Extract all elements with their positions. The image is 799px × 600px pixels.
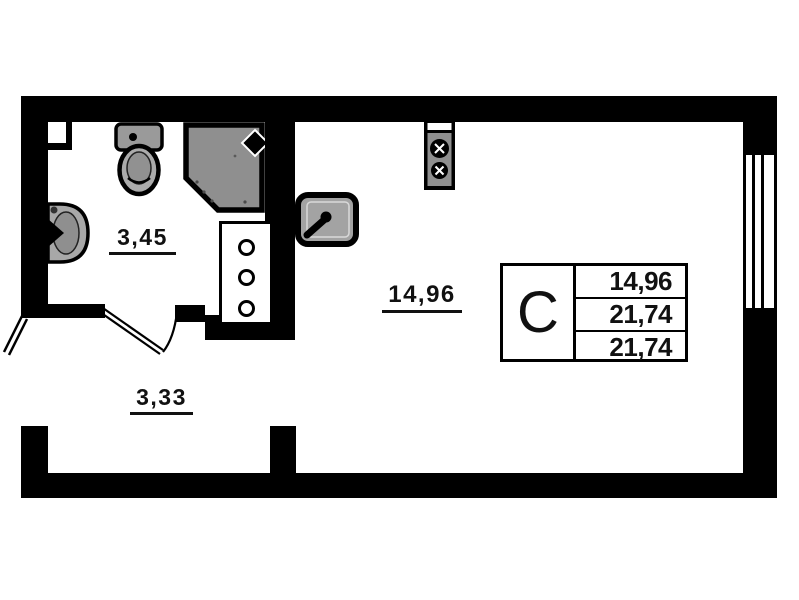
pipe-riser-icon	[238, 300, 255, 317]
wall-bottom	[21, 473, 777, 498]
unit-area-living: 14,96	[576, 266, 685, 299]
utility-cabinet	[219, 221, 273, 325]
pipe-riser-icon	[238, 269, 255, 286]
unit-area-total: 21,74	[576, 332, 685, 363]
toilet-icon	[112, 120, 166, 198]
wall-passage-stub	[270, 426, 296, 473]
area-label-living-room: 14,96	[382, 283, 462, 313]
wall-left-stub	[21, 426, 48, 473]
stove-icon	[424, 118, 455, 190]
floor-plan: 3,45 3,33 14,96 С 14,96 21,74 21,74	[0, 0, 799, 600]
wall-corner-notch	[48, 122, 66, 143]
area-label-hallway: 3,33	[130, 386, 193, 415]
unit-type-label: С	[503, 266, 576, 359]
window	[743, 155, 777, 308]
wall-left-upper	[21, 96, 48, 318]
bathroom-door-icon	[92, 298, 188, 360]
wall-top	[21, 96, 777, 122]
unit-info-table: С 14,96 21,74 21,74	[500, 263, 688, 362]
unit-area-reduced: 21,74	[576, 299, 685, 332]
entrance-door-icon	[0, 312, 32, 360]
pipe-riser-icon	[238, 239, 255, 256]
bathroom-sink-icon	[46, 201, 90, 265]
shower-icon	[183, 122, 265, 214]
area-label-bathroom: 3,45	[109, 226, 176, 255]
kitchen-sink-icon	[294, 191, 360, 248]
